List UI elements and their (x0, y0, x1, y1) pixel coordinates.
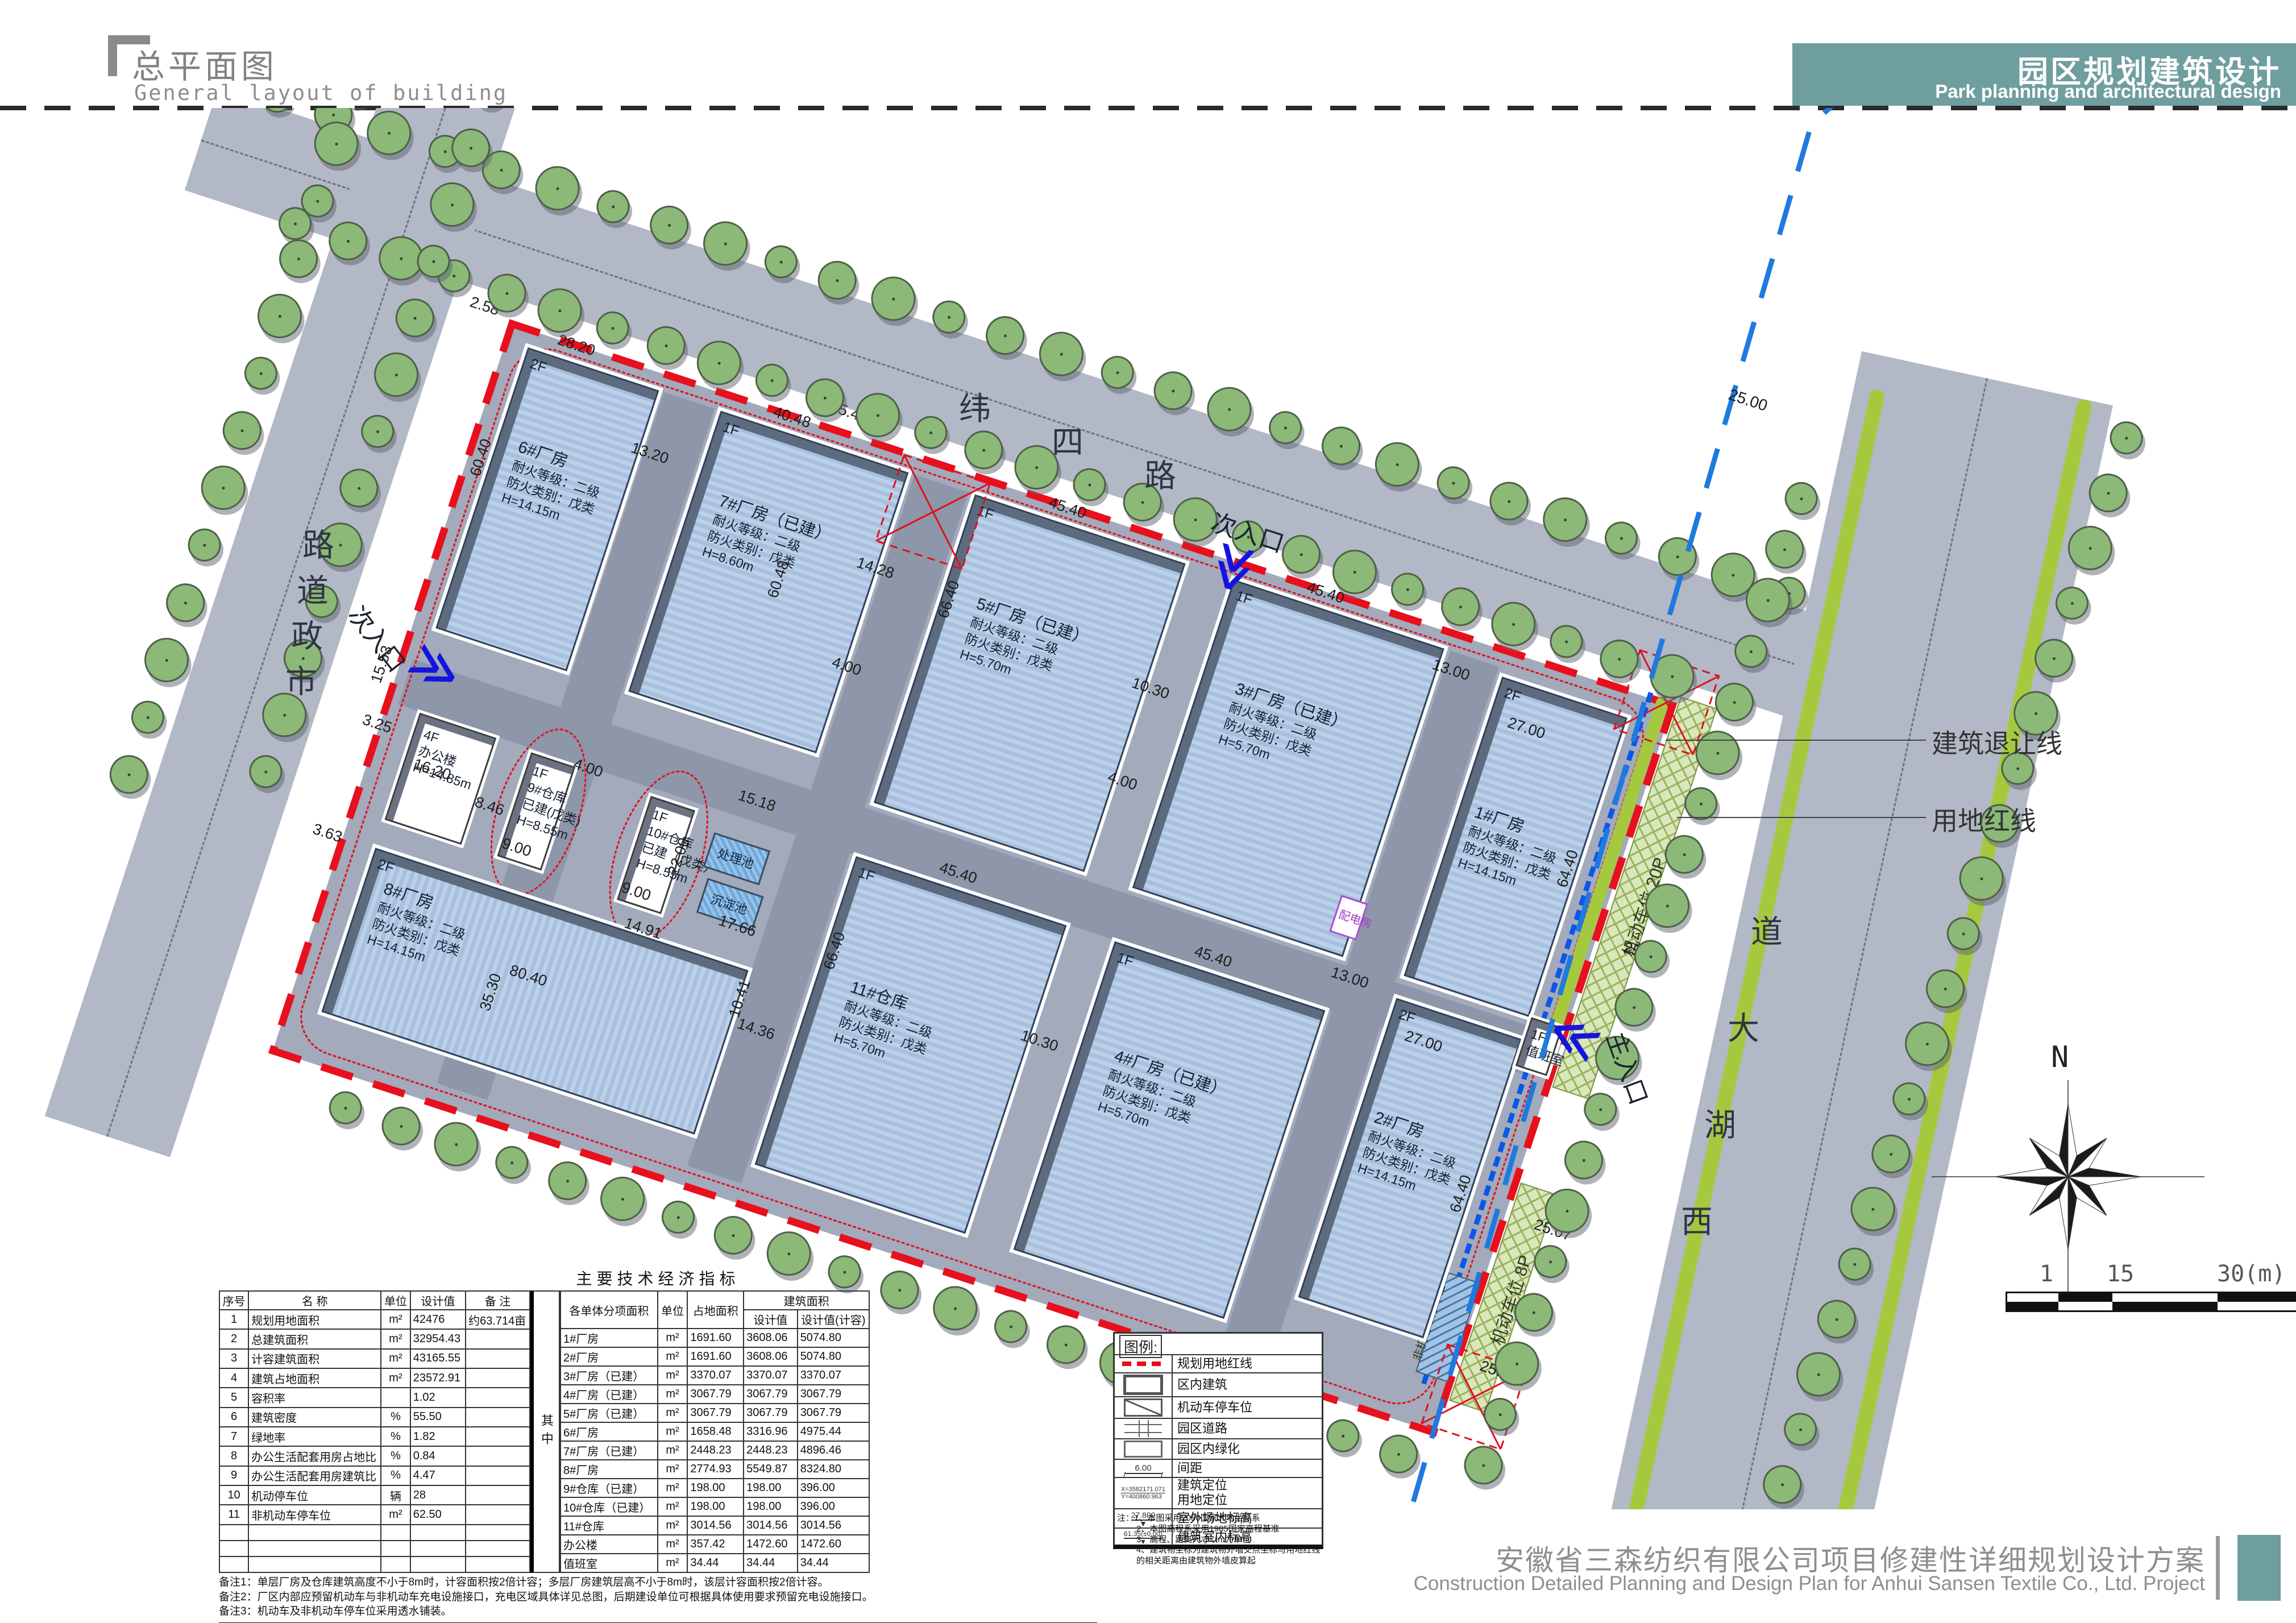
legend-item-6: X=3582171.071Y=400860.963建筑定位 用地定位 (1115, 1477, 1322, 1508)
spacing-icon: 6.00// (1115, 1460, 1173, 1477)
building-label-pool1: 处理池 (715, 845, 756, 873)
tree (709, 1211, 758, 1260)
scale-label-15: 15 (2107, 1261, 2134, 1287)
legend-item-0: 规划用地红线 (1115, 1354, 1322, 1372)
setback-line-label: 建筑退让线 (1932, 723, 2062, 761)
tree (325, 1087, 366, 1128)
indicators-title: 主要技术经济指标 (219, 1267, 1097, 1289)
tree (1374, 1430, 1423, 1479)
tree (1760, 525, 1809, 574)
road-dimension: 25.00 (1726, 385, 1770, 415)
legend-label-4: 园区内绿化 (1173, 1442, 1240, 1456)
tree (139, 632, 194, 687)
red-line-label: 用地红线 (1932, 800, 2036, 838)
tree (240, 352, 281, 394)
scale-label-0: 1 (2040, 1261, 2053, 1287)
legend-item-5: 6.00//间距 (1115, 1459, 1322, 1477)
red-dash-icon (1115, 1355, 1173, 1372)
tree (1322, 1415, 1364, 1456)
project-title-en: Construction Detailed Planning and Desig… (1414, 1572, 2205, 1595)
building-label-3: 3#厂房（已建）耐火等级：二级防火类别：戊类H=5.70m (1216, 679, 1350, 784)
page-subtitle: General layout of building (134, 81, 508, 105)
road-name-char: 路 (302, 520, 334, 566)
scale-label-30: 30(m) (2217, 1261, 2285, 1287)
road-name-char: 路 (1144, 451, 1176, 497)
footer-logo-square (2237, 1535, 2281, 1601)
building-label-11: 11#仓库耐火等级：二级防火类别：戊类H=5.70m (832, 977, 941, 1074)
road-name-char: 四 (1052, 417, 1083, 463)
road-name-char: 道 (297, 566, 329, 612)
tree (195, 460, 251, 516)
legend-label-1: 区内建筑 (1173, 1377, 1227, 1392)
road-name-char: 政 (291, 611, 323, 657)
banner-subtitle: Park planning and architectural design (1935, 81, 2281, 102)
north-label: N (2051, 1040, 2069, 1074)
tree (429, 1116, 484, 1172)
tree (657, 1196, 699, 1238)
green-icon (1115, 1439, 1173, 1459)
building-label-6: 6#厂房耐火等级：二级防火类别：戊类H=14.15m (499, 437, 609, 534)
sheet: 总平面图 General layout of building 园区规划建筑设计… (0, 0, 2296, 1623)
coords-icon: X=3582171.071Y=400860.963 (1115, 1478, 1173, 1508)
indicators-table: 序号名 称单位设计值备 注 1规划用地面积m²42476约63.714亩2总建筑… (219, 1290, 530, 1573)
breakdown-table: 各单体分项面积 单位 占地面积 建筑面积 设计值 设计值(计容) 1#厂房m²1… (560, 1290, 870, 1573)
legend-label-0: 规划用地红线 (1173, 1356, 1252, 1371)
road-icon (1115, 1419, 1173, 1438)
tree (376, 1102, 425, 1151)
floor-tag-6: 2F (528, 356, 549, 377)
legend-label-3: 园区道路 (1173, 1421, 1227, 1436)
tree (161, 578, 210, 627)
building-label-5: 5#厂房（已建）耐火等级：二级防火类别：戊类H=5.70m (957, 593, 1091, 699)
road-name-char: 纬 (959, 384, 991, 430)
building-label-8: 8#厂房耐火等级：二级防火类别：戊类H=14.15m (365, 879, 475, 976)
floor-tag-8: 2F (375, 856, 396, 877)
legend-item-2: 机动车停车位 (1115, 1396, 1322, 1418)
north-arrow-icon (1926, 1074, 2210, 1313)
tree (127, 696, 168, 738)
floor-tag-2: 2F (1396, 1006, 1417, 1027)
legend-label-5: 间距 (1173, 1461, 1202, 1476)
tree (184, 524, 225, 566)
building-label-4: 4#厂房（已建）耐火等级：二级防火类别：戊类H=5.70m (1095, 1046, 1230, 1151)
scale-bar (2006, 1292, 2296, 1312)
road-name-char: 市 (285, 657, 317, 703)
indicator-tables: 主要技术经济指标 序号名 称单位设计值备 注 1规划用地面积m²42476约63… (219, 1267, 1097, 1623)
road-name-char: 大 (1728, 1003, 1759, 1049)
site-rotated-frame: 机动车位 20P 机动车位 8P 非机动车停车位 机动车充电区域 2F6#厂房耐… (273, 324, 1673, 1432)
building-label-1: 1#厂房耐火等级：二级防火类别：戊类H=14.15m (1456, 802, 1566, 899)
floor-tag-11: 1F (856, 865, 877, 886)
road-name-char: 西 (1681, 1197, 1713, 1243)
header-banner: 园区规划建筑设计 Park planning and architectural… (1792, 43, 2296, 106)
footer-divider (2216, 1536, 2220, 1600)
tree (252, 288, 308, 343)
legend-item-3: 园区道路 (1115, 1418, 1322, 1438)
group-label: 其中 (530, 1290, 560, 1573)
parking-icon (1115, 1397, 1173, 1418)
dimension-3-63-30: 3.63 (310, 820, 344, 846)
floor-tag-4: 1F (1115, 949, 1136, 970)
floor-tag-1: 2F (1502, 685, 1523, 706)
legend-item-4: 园区内绿化 (1115, 1438, 1322, 1459)
tree (1780, 478, 1822, 519)
tree (2106, 417, 2147, 459)
building-label-2: 2#厂房耐火等级：二级防火类别：戊类H=14.15m (1355, 1107, 1465, 1205)
tree (543, 1156, 592, 1205)
tree (1559, 1135, 1608, 1184)
tree (218, 406, 267, 455)
legend-notes: 注：1、本图采用2000国家大地坐标系2、本图高程系采用1985国家高程基准3、… (1117, 1513, 1322, 1567)
tree (105, 750, 153, 799)
legend-item-1: 区内建筑 (1115, 1372, 1322, 1396)
legend: 图例: 规划用地红线区内建筑机动车停车位园区道路园区内绿化6.00//间距X=3… (1113, 1332, 1323, 1549)
road-name-char: 湖 (1704, 1100, 1736, 1146)
tree (274, 234, 323, 283)
legend-label-2: 机动车停车位 (1173, 1400, 1252, 1415)
building-icon (1115, 1373, 1173, 1396)
floor-tag-7: 1F (721, 419, 742, 440)
road-name-char: 道 (1751, 907, 1783, 953)
building-label-7: 7#厂房（已建）耐火等级：二级防火类别：戊类H=8.60m (700, 491, 834, 596)
tree (491, 1142, 533, 1183)
tree (595, 1171, 650, 1227)
legend-label-6: 建筑定位 用地定位 (1173, 1478, 1227, 1508)
table-notes: 备注1：单层厂房及仓库建筑高度不小于8m时，计容面积按2倍计容；多层厂房建筑层高… (219, 1575, 1097, 1619)
